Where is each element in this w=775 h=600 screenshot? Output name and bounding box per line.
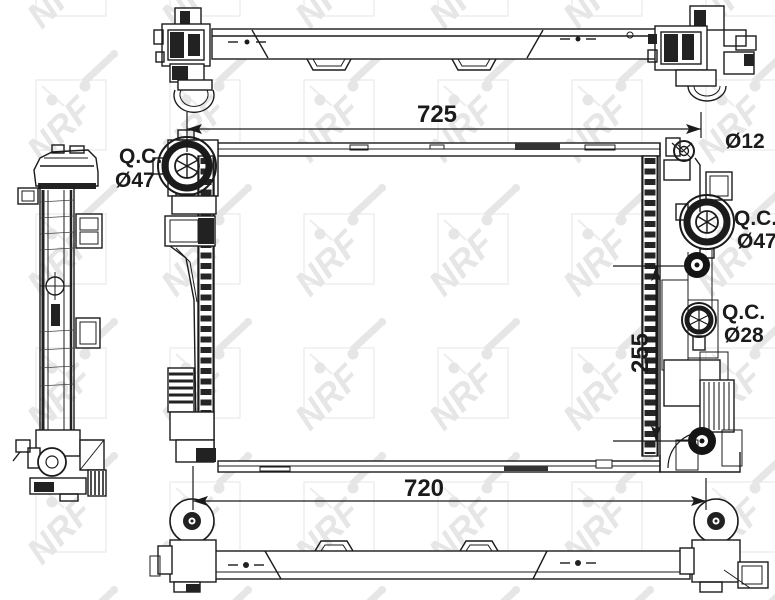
label-right-qc-upper: Q.C.: [734, 207, 775, 230]
radiator-technical-drawing: NRF: [0, 0, 775, 600]
label-right-qc-upper-size: Ø47: [737, 230, 775, 253]
label-right-qc-lower-size: Ø28: [724, 324, 764, 347]
label-left-qc: Q.C.: [119, 145, 162, 168]
watermark-pattern: [0, 0, 775, 600]
dim-label-o12: Ø12: [725, 130, 765, 153]
dim-label-255: 255: [627, 333, 654, 373]
label-right-qc-lower: Q.C.: [722, 301, 765, 324]
dim-label-720: 720: [404, 475, 444, 502]
drawing-svg: NRF: [0, 0, 775, 600]
dim-label-725: 725: [417, 101, 457, 128]
label-left-qc-size: Ø47: [115, 169, 155, 192]
